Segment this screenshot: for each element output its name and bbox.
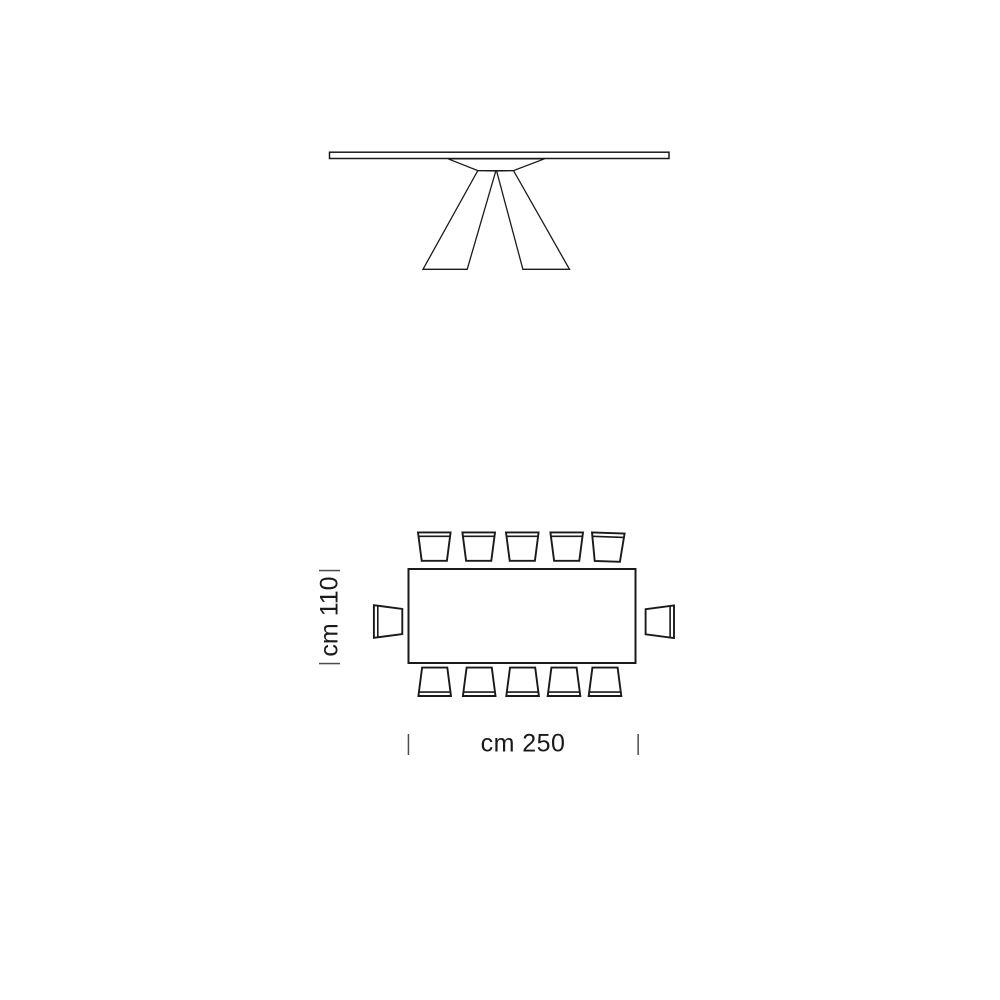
svg-text:cm 250: cm 250	[481, 730, 566, 758]
svg-text:cm 110: cm 110	[316, 576, 344, 656]
